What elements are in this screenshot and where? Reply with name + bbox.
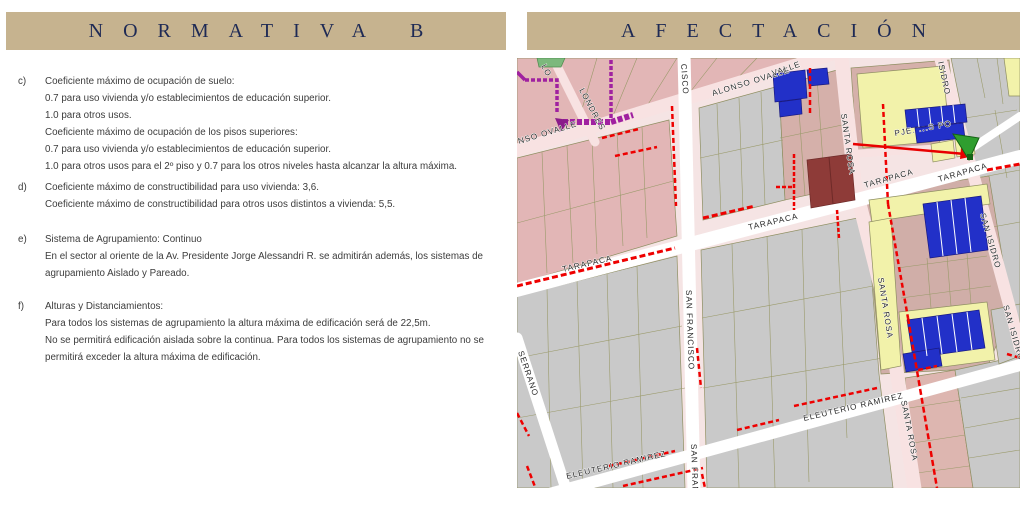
norm-text-line: No se permitirá edificación aislada sobr…	[45, 332, 500, 349]
norm-item-e: e) Sistema de Agrupamiento: Continuo En …	[18, 231, 500, 282]
afectacion-header: AFECTACIÓN	[527, 12, 1020, 50]
norm-text-line: Coeficiente máximo de ocupación de suelo…	[45, 73, 500, 90]
item-letter: f)	[18, 298, 24, 315]
norm-text-line: permitirá exceder la altura máxima de ed…	[45, 349, 500, 366]
item-letter: d)	[18, 179, 27, 196]
norm-text-line: En el sector al oriente de la Av. Presid…	[45, 248, 500, 265]
norm-text-line: Para todos los sistemas de agrupamiento …	[45, 315, 500, 332]
norm-text-line: Coeficiente máximo de ocupación de los p…	[45, 124, 500, 141]
norm-text-line: agrupamiento Aislado y Pareado.	[45, 265, 500, 282]
street-label-san-francisco: SAN FRAN	[689, 444, 700, 488]
item-letter: e)	[18, 231, 27, 248]
normativa-header: NORMATIVA B	[6, 12, 506, 50]
afectacion-map: LO LONDRES NSO OVALLE ALONSO OVALLE VALL…	[517, 58, 1020, 488]
norm-text-line: 0.7 para uso vivienda y/o establecimient…	[45, 141, 500, 158]
norm-text-line: Coeficiente máximo de constructibilidad …	[45, 179, 500, 196]
item-letter: c)	[18, 73, 26, 90]
norm-text-line: Alturas y Distanciamientos:	[45, 298, 500, 315]
norm-item-c: c) Coeficiente máximo de ocupación de su…	[18, 73, 500, 176]
norm-text-line: Coeficiente máximo de constructibilidad …	[45, 196, 500, 213]
map-svg: LO LONDRES NSO OVALLE ALONSO OVALLE VALL…	[517, 58, 1020, 488]
afectacion-title: AFECTACIÓN	[621, 20, 946, 43]
norm-item-d: d) Coeficiente máximo de constructibilid…	[18, 179, 500, 213]
norm-text-line: 0.7 para uso vivienda y/o establecimient…	[45, 90, 500, 107]
norm-text-line: Sistema de Agrupamiento: Continuo	[45, 231, 500, 248]
normativa-title: NORMATIVA B	[89, 20, 444, 43]
green-marker-dot	[967, 154, 973, 160]
norm-item-f: f) Alturas y Distanciamientos: Para todo…	[18, 298, 500, 366]
norm-text-line: 1.0 para otros usos para el 2º piso y 0.…	[45, 158, 500, 175]
norm-text-line: 1.0 para otros usos.	[45, 107, 500, 124]
